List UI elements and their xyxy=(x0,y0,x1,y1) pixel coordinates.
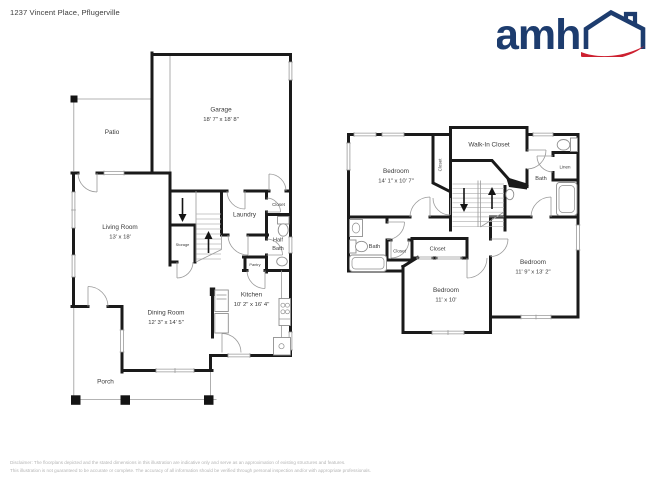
disclaimer-line-1: Disclaimer: The floorplans depicted and … xyxy=(10,459,644,467)
porch-post xyxy=(204,395,214,405)
room-dims-bedroom1: 14' 1" x 10' 7" xyxy=(378,179,414,185)
room-dims-bedroom2: 11' x 10' xyxy=(435,298,456,304)
arrow-head xyxy=(460,204,468,212)
arrow-head xyxy=(179,214,187,222)
door-arc xyxy=(527,150,546,169)
toilet-bowl xyxy=(278,224,288,236)
room-label-porch: Porch xyxy=(97,379,114,386)
disclaimer: Disclaimer: The floorplans depicted and … xyxy=(10,459,644,474)
stairs-down-arrow-icon xyxy=(179,198,187,222)
sink-icon xyxy=(506,189,514,199)
vanity xyxy=(350,220,363,237)
toilet-tank xyxy=(571,138,578,152)
door-arc xyxy=(410,197,430,217)
room-label-kitchen: Kitchen xyxy=(241,292,263,299)
bathtub-icon xyxy=(557,183,578,216)
room-label-bedroom1: Bedroom xyxy=(383,168,409,175)
room-label-closet-left: Closet xyxy=(393,249,407,254)
door-arc xyxy=(177,262,193,278)
room-dims-kitchen: 10' 2" x 16' 4" xyxy=(234,302,270,308)
door-arc xyxy=(467,258,487,278)
door-arc xyxy=(247,271,265,289)
room-label-halfbath-1: Half xyxy=(273,238,283,244)
room-label-storage: Storage xyxy=(176,242,190,247)
room-dims-living: 13' x 18' xyxy=(109,235,131,241)
room-label-closet-middle: Closet xyxy=(430,247,446,253)
door-arc xyxy=(88,287,108,307)
door-arc xyxy=(269,174,286,191)
room-label-pantry: Pantry xyxy=(249,262,260,267)
sink-icon xyxy=(277,257,288,266)
floorplan-sheet: 1237 Vincent Place, Pflugerville amh xyxy=(0,0,650,488)
room-label-laundry: Laundry xyxy=(233,212,257,219)
stair-rail xyxy=(478,181,504,228)
fridge-top xyxy=(215,290,229,312)
wall-wedge xyxy=(506,177,527,190)
door-arc xyxy=(537,156,553,172)
stove-icon xyxy=(279,299,291,326)
refrigerator-icon xyxy=(215,290,229,333)
wall xyxy=(72,173,170,191)
porch-outline xyxy=(72,308,217,400)
toilet-icon xyxy=(350,240,368,253)
porch-post xyxy=(71,395,81,405)
room-label-halfbath-2: Bath xyxy=(272,246,284,252)
toilet-bowl xyxy=(356,241,368,251)
second-floor-stairs xyxy=(453,181,505,228)
room-label-dining: Dining Room xyxy=(148,310,185,317)
toilet-tank xyxy=(350,240,357,253)
room-dims-dining: 12' 3" x 14' 5" xyxy=(148,320,184,326)
door-arc xyxy=(228,235,248,255)
toilet-tank xyxy=(278,217,290,225)
toilet-bowl xyxy=(557,140,570,151)
toilet-icon xyxy=(557,138,577,152)
closet-bifold xyxy=(417,257,462,259)
room-dims-garage: 18' 7" x 18' 8" xyxy=(203,117,239,123)
room-label-garage: Garage xyxy=(210,107,232,114)
sink-icon xyxy=(350,220,363,237)
room-label-bedroom2: Bedroom xyxy=(433,287,459,294)
room-label-bath-right: Bath xyxy=(535,176,547,182)
bathtub-icon xyxy=(350,255,387,272)
second-floor-walls xyxy=(349,128,579,333)
door-arc xyxy=(491,239,509,257)
room-label-bedroom3: Bedroom xyxy=(520,259,546,266)
first-floor-plan: Patio Garage 18' 7" x 18' 8" Living Room… xyxy=(71,53,293,405)
door-arc xyxy=(433,198,451,215)
second-floor-windows xyxy=(346,132,580,335)
arrow-head xyxy=(488,187,496,195)
door-arc xyxy=(78,173,97,192)
disclaimer-line-2: This illustration is not guaranteed to b… xyxy=(10,467,644,475)
room-label-bath-left: Bath xyxy=(369,244,381,250)
room-label-closet: Closet xyxy=(272,202,286,207)
porch-post xyxy=(121,395,131,405)
door-arc xyxy=(227,191,245,209)
stairs-down-arrow-icon xyxy=(460,188,468,212)
appliance-body xyxy=(274,338,291,356)
room-label-living: Living Room xyxy=(102,224,138,231)
second-floor-plan: Bedroom 14' 1" x 10' 7" Closet Walk-In C… xyxy=(346,128,580,335)
arrow-head xyxy=(205,231,213,239)
door-arc xyxy=(387,222,405,240)
room-label-linen: Linen xyxy=(559,165,571,170)
wall xyxy=(211,356,291,371)
door-arc xyxy=(222,334,241,353)
room-label-walkin-closet: Walk-In Closet xyxy=(468,142,510,149)
room-label-closet-bedroom1: Closet xyxy=(438,158,443,172)
patio-post xyxy=(71,96,78,103)
dishwasher-icon xyxy=(274,338,291,356)
fridge-bottom xyxy=(215,314,229,334)
toilet-icon xyxy=(278,217,290,237)
floorplans: Patio Garage 18' 7" x 18' 8" Living Room… xyxy=(0,0,650,488)
door-arc xyxy=(531,197,551,217)
room-dims-bedroom3: 11' 9" x 13' 2" xyxy=(515,270,550,276)
room-label-patio: Patio xyxy=(105,129,120,136)
